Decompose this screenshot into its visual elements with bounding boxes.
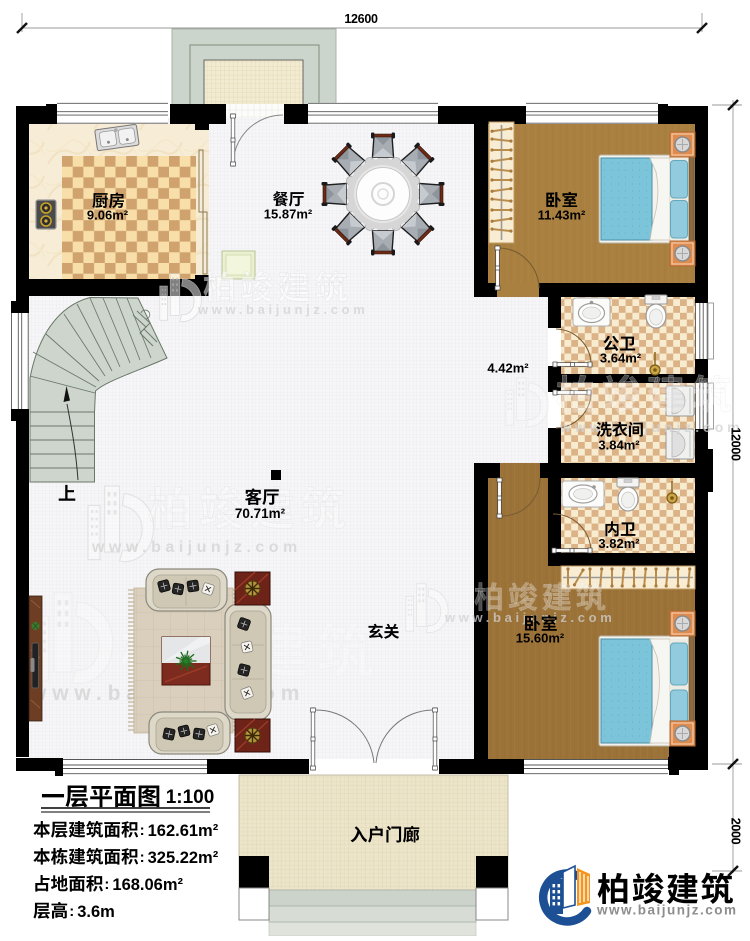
svg-text:www.baijunjz.com: www.baijunjz.com: [91, 539, 302, 556]
svg-text:3.6m: 3.6m: [77, 903, 115, 921]
svg-text:70.71m²: 70.71m²: [235, 506, 286, 521]
svg-text:3.82m²: 3.82m²: [598, 536, 640, 551]
svg-text:15.60m²: 15.60m²: [516, 631, 565, 646]
svg-text:www.baijunjz.com: www.baijunjz.com: [559, 419, 744, 435]
svg-text:15.87m²: 15.87m²: [264, 207, 313, 222]
svg-text:4.42m²: 4.42m²: [487, 361, 529, 376]
svg-text:12600: 12600: [344, 12, 378, 26]
svg-text:168.06m²: 168.06m²: [112, 876, 183, 894]
svg-text:325.22m²: 325.22m²: [148, 849, 219, 867]
svg-text::: :: [140, 849, 145, 866]
svg-text:9.06m²: 9.06m²: [87, 208, 129, 223]
svg-text:162.61m²: 162.61m²: [148, 822, 219, 840]
svg-text:3.64m²: 3.64m²: [600, 351, 642, 366]
svg-text:12000: 12000: [729, 427, 743, 461]
svg-text:www.baijunjz.com: www.baijunjz.com: [596, 903, 738, 918]
svg-text::: :: [140, 822, 145, 839]
svg-text:11.43m²: 11.43m²: [538, 208, 586, 223]
svg-text::: :: [104, 876, 109, 893]
svg-text:3.84m²: 3.84m²: [598, 438, 640, 453]
svg-text:1:100: 1:100: [166, 787, 215, 808]
svg-text:www.baijunjz.com: www.baijunjz.com: [197, 302, 368, 317]
svg-text:2000: 2000: [729, 818, 743, 845]
svg-text::: :: [69, 903, 74, 920]
